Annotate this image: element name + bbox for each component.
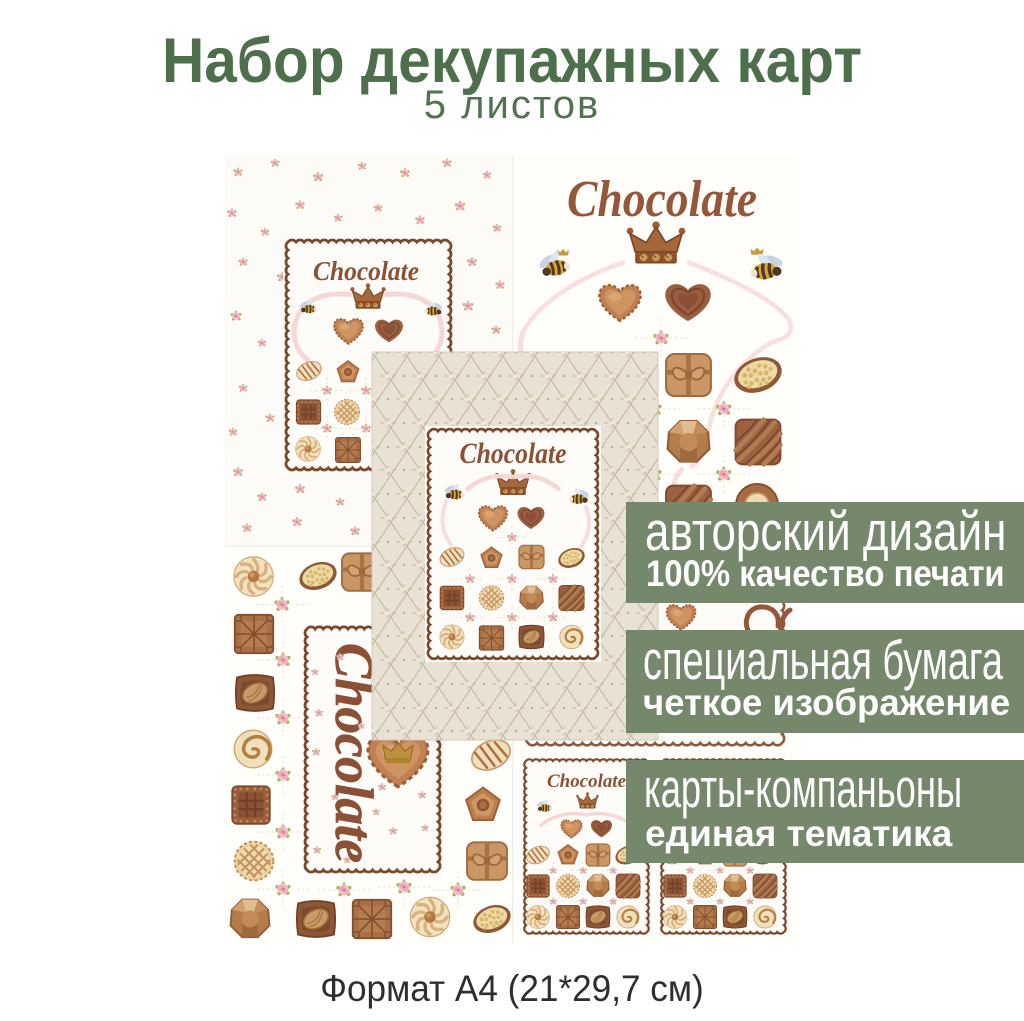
svg-text:Chocolate: Chocolate xyxy=(547,771,627,792)
svg-text:Chocolate: Chocolate xyxy=(460,437,567,470)
svg-text:Chocolate: Chocolate xyxy=(567,171,757,228)
svg-text:Chocolate: Chocolate xyxy=(313,256,419,286)
